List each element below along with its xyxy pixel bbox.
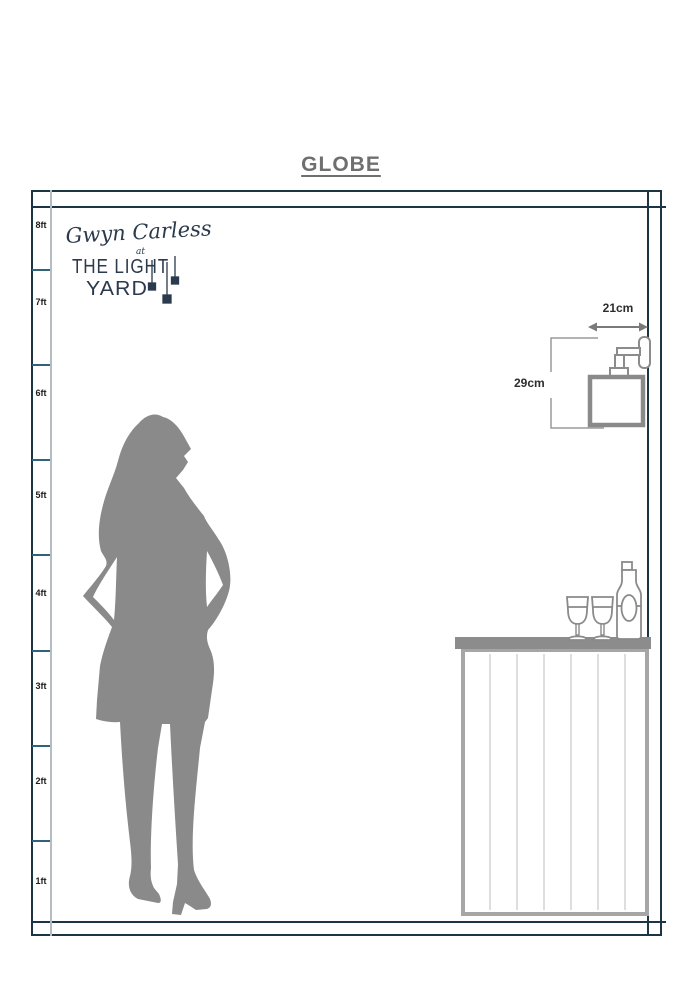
wine-glass-icon [567,597,588,640]
brand-line1-text: THE LIGHT [72,256,169,278]
brand-line2-text: YARD [86,278,148,300]
lamp-shade [590,377,643,425]
wine-bottle-icon [617,562,641,639]
scale-diagram: GLOBE 8ft 7ft 6ft 5ft 4ft 3ft 2ft 1ft 21… [0,0,700,1000]
width-arrow-icon [588,323,648,332]
brand-logo: Gwyn Carless at THE LIGHT YARD [65,216,212,303]
artwork-layer: Gwyn Carless at THE LIGHT YARD [0,0,700,1000]
woman-silhouette-icon [83,415,230,915]
brand-script-text: Gwyn Carless [65,216,212,248]
wall-light-icon [551,323,650,429]
wine-glass-icon [592,597,613,640]
bar-counter-icon [455,637,651,914]
